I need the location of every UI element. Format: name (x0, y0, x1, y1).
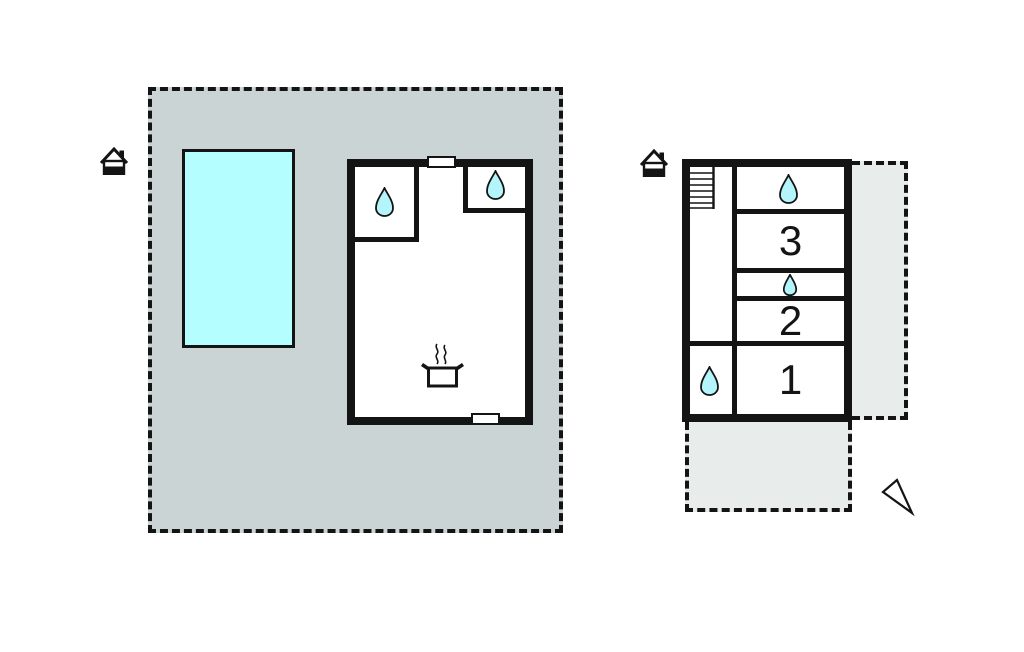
window-opening (427, 156, 456, 168)
window-opening (471, 413, 500, 425)
terrace-right (852, 161, 908, 420)
interior-wall (355, 237, 419, 242)
water-drop-icon (486, 170, 505, 200)
house-icon (99, 147, 129, 175)
terrace-bottom (685, 422, 852, 512)
water-drop-icon (779, 174, 798, 204)
water-drop-icon (375, 187, 394, 217)
stairs-icon (690, 167, 715, 209)
cooking-pot-icon (419, 341, 466, 389)
room-1-label: 1 (737, 346, 844, 414)
swimming-pool (182, 149, 295, 348)
room-2-label: 2 (737, 301, 844, 341)
interior-wall (414, 167, 419, 242)
interior-wall (463, 208, 525, 213)
house-icon (639, 149, 669, 177)
floorplan-canvas: 3 2 1 (0, 0, 1024, 652)
room-3-label: 3 (737, 214, 844, 268)
interior-wall (463, 167, 468, 213)
north-arrow-icon (876, 472, 920, 520)
water-drop-icon (700, 366, 719, 396)
water-drop-icon (783, 274, 797, 296)
interior-wall (737, 268, 844, 273)
